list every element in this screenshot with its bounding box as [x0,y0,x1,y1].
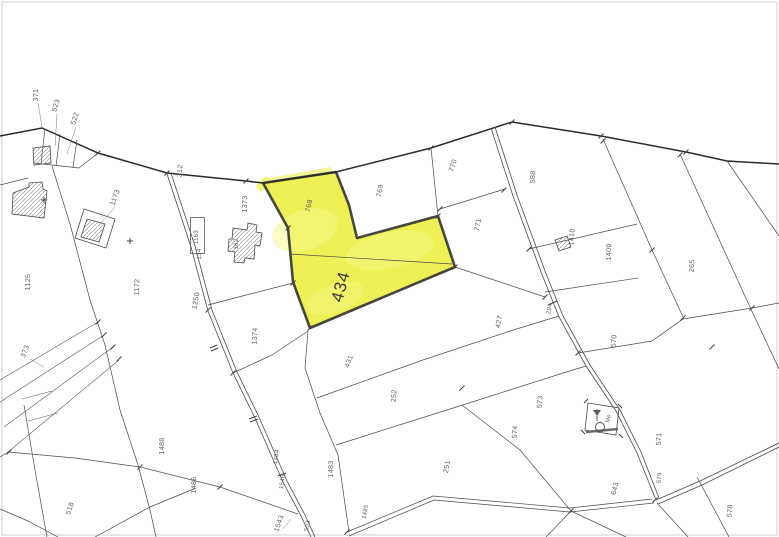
utility-label-M6: M6 [605,414,613,424]
pole-icon [593,410,601,416]
parcel-labels: 371 523 522 1125 1173 1172 312 1163 134 … [20,89,734,533]
parcel-label-251: 251 [443,460,452,474]
field-strip-lines [0,322,119,452]
road-label-503: 503 [304,520,312,532]
parcel-boundary [208,283,293,305]
road-east-branch [658,447,779,504]
parcel-label-265: 265 [688,259,696,272]
road-label-1485: 1485 [362,504,370,520]
map-canvas: 371 523 522 1125 1173 1172 312 1163 134 … [0,0,779,537]
parcel-boundary [0,405,196,537]
parcel-boundary [305,331,349,532]
parcel-label-371: 371 [33,89,40,102]
parcel-label-518: 518 [65,501,76,515]
road-east [495,127,659,498]
field-strip-dashes [22,391,58,421]
parcel-label-571: 571 [656,432,663,445]
parcel-label-1172: 1172 [134,279,142,296]
parcel-label-523: 523 [51,98,62,112]
building-label-162: 162 [234,238,240,249]
parcel-label-588: 588 [530,170,537,183]
parcel-label-1488: 1488 [159,437,167,454]
parcel-label-373: 373 [20,344,31,359]
road-label-1484: 1484 [273,449,281,465]
parcel-label-1373: 1373 [242,195,250,212]
parcel-label-771: 771 [474,218,483,232]
main-boundary [0,122,779,183]
building [33,146,51,165]
parcel-label-1543: 1543 [274,514,286,533]
parcel-boundary [603,139,683,317]
parcel-label-252: 252 [390,389,398,402]
parcel-boundary [8,452,298,514]
parcel-label-312: 312 [176,164,184,177]
road-east-branch [656,443,779,500]
parcel-label-1374: 1374 [252,327,260,344]
road-label-1250: 1250 [192,292,202,310]
parcel-label-431: 431 [344,354,355,369]
parcel-boundary [578,303,779,353]
road-label-294: 294 [546,303,554,315]
parcel-label-1409: 1409 [606,243,614,260]
parcel-label-1483: 1483 [328,460,336,477]
cadastral-map-scan: 371 523 522 1125 1173 1172 312 1163 134 … [0,0,779,537]
parcel-boundary [462,405,571,511]
parcel-label-573: 573 [536,395,544,408]
parcel-label-574: 574 [511,425,519,438]
survey-ticks [7,120,755,535]
parcel-boundary [727,161,779,236]
parcel-label-643: 643 [611,481,621,495]
parcel-label-578: 578 [726,504,734,517]
utility-wall [586,429,618,432]
parcel-label-1486: 1486 [191,476,199,493]
road-label-1163: 1163 [194,230,200,244]
parcel-label-1410: 1410 [568,228,576,246]
road-east [491,128,656,500]
parcel-boundary [546,477,729,537]
road-label-134: 134 [197,248,203,259]
parcel-label-427: 427 [495,315,504,329]
road-label-579: 579 [657,472,664,484]
parcel-label-1173: 1173 [109,188,121,206]
parcel-boundary [233,331,308,373]
parcel-label-1125: 1125 [25,274,33,291]
parcel-label-570: 570 [610,334,618,347]
highlighted-parcel [255,167,455,328]
parcel-label-770: 770 [448,158,459,172]
road-south [349,500,654,536]
parcel-label-522: 522 [70,111,81,125]
culvert-marks [210,301,557,476]
road-south [347,496,652,532]
parcel-boundary [52,166,156,537]
parcel-label-769: 769 [376,184,385,198]
